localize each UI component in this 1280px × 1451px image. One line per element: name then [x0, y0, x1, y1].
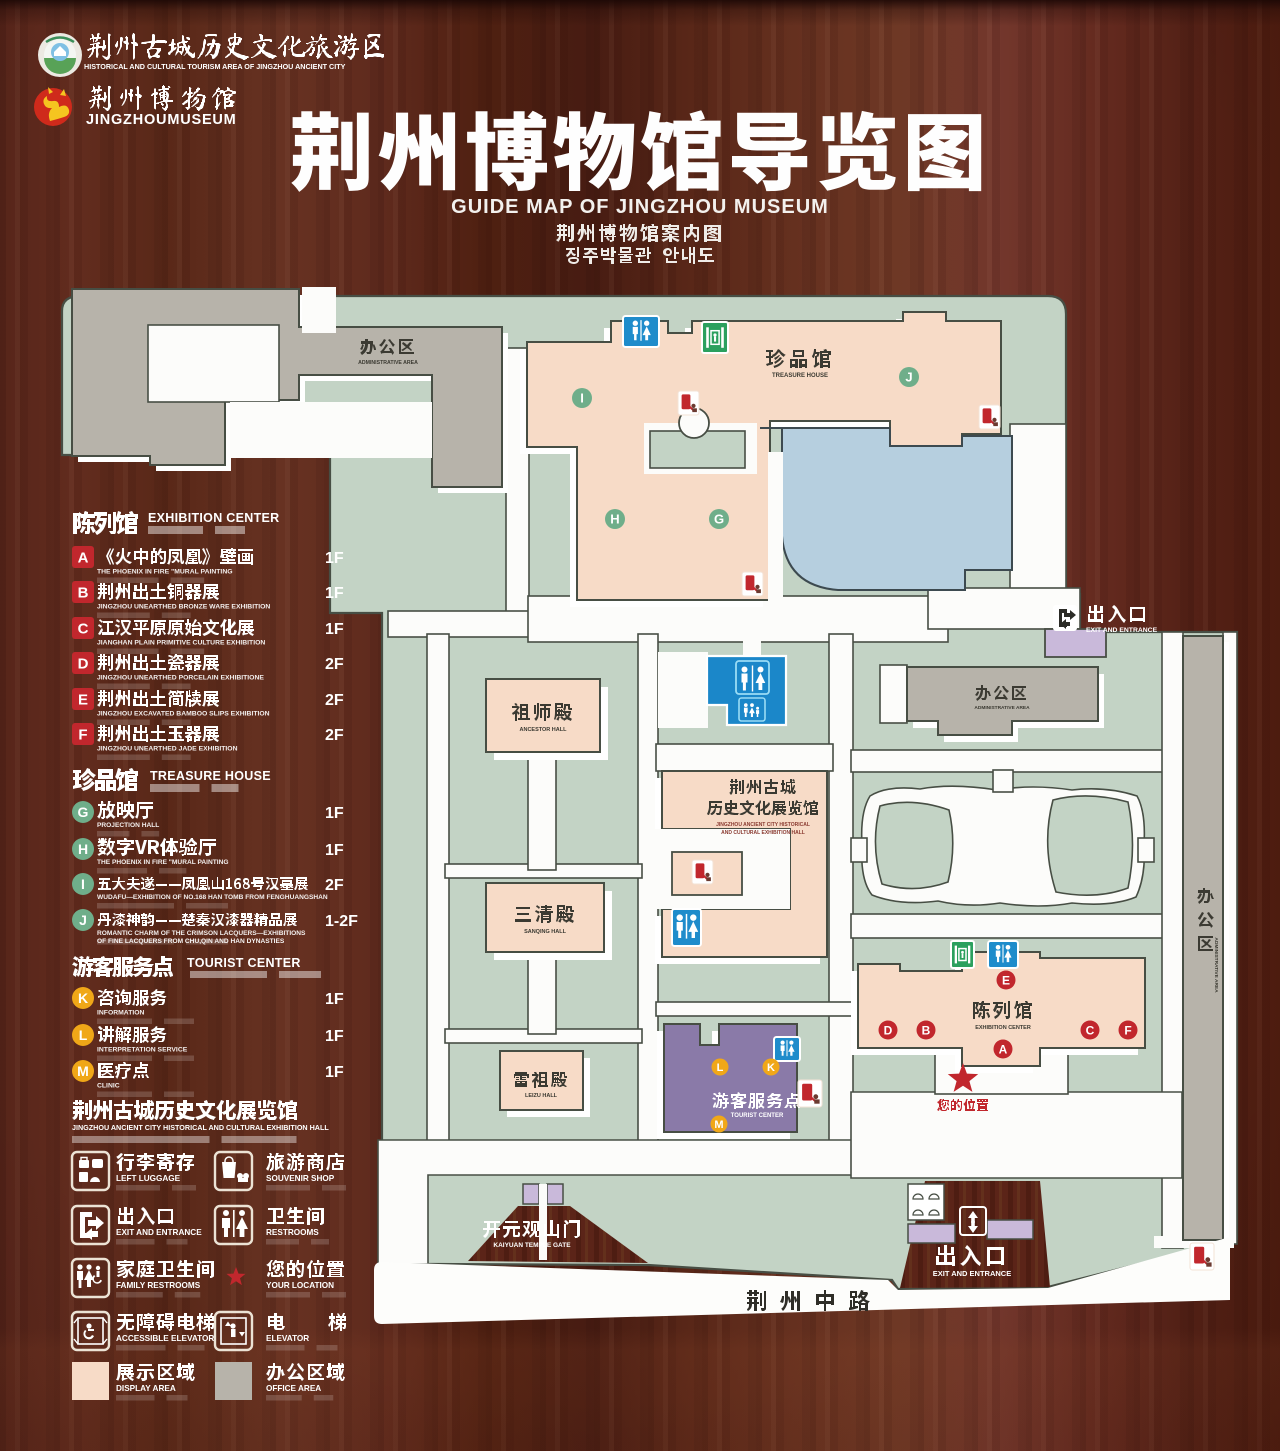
svg-text:ACCESSIBLE ELEVATOR: ACCESSIBLE ELEVATOR [116, 1334, 214, 1343]
svg-text:L: L [79, 1027, 88, 1043]
svg-text:2F: 2F [325, 656, 344, 673]
svg-text:AND CULTURAL EXHIBITION HALL: AND CULTURAL EXHIBITION HALL [721, 830, 805, 836]
svg-text:OFFICE AREA: OFFICE AREA [266, 1384, 321, 1393]
svg-text:1F: 1F [325, 805, 344, 822]
svg-text:ANCESTOR HALL: ANCESTOR HALL [520, 727, 568, 733]
svg-text:LEIZU HALL: LEIZU HALL [525, 1093, 558, 1099]
svg-text:EXIT AND ENTRANCE: EXIT AND ENTRANCE [116, 1228, 202, 1237]
svg-text:M: M [77, 1063, 89, 1079]
svg-text:I: I [580, 391, 584, 406]
svg-text:DISPLAY AREA: DISPLAY AREA [116, 1384, 176, 1393]
svg-text:F: F [78, 727, 87, 744]
svg-text:HISTORICAL AND CULTURAL TOURIS: HISTORICAL AND CULTURAL TOURISM AREA OF … [84, 62, 346, 71]
svg-text:JINGZHOU ANCIENT CITY HISTORIC: JINGZHOU ANCIENT CITY HISTORICAL AND CUL… [72, 1123, 329, 1132]
svg-text:SANQING HALL: SANQING HALL [524, 929, 567, 935]
svg-text:F: F [1124, 1023, 1131, 1037]
svg-text:JINGZHOUMUSEUM: JINGZHOUMUSEUM [86, 112, 237, 128]
svg-text:1F: 1F [325, 585, 344, 602]
svg-text:FAMILY RESTROOMS: FAMILY RESTROOMS [116, 1281, 201, 1290]
svg-text:M: M [714, 1119, 723, 1131]
svg-text:G: G [78, 804, 89, 820]
svg-text:1F: 1F [325, 991, 344, 1008]
svg-text:H: H [610, 512, 619, 527]
svg-text:D: D [884, 1023, 893, 1037]
svg-text:TOURIST CENTER: TOURIST CENTER [187, 956, 301, 970]
svg-text:JINGZHOU UNEARTHED BRONZE WARE: JINGZHOU UNEARTHED BRONZE WARE EXHIBITIO… [97, 604, 270, 611]
svg-text:K: K [767, 1062, 775, 1074]
svg-text:1F: 1F [325, 1028, 344, 1045]
svg-text:YOUR LOCATION: YOUR LOCATION [266, 1281, 334, 1290]
svg-text:2F: 2F [325, 877, 344, 894]
svg-text:D: D [78, 656, 89, 673]
svg-text:1F: 1F [325, 842, 344, 859]
svg-text:C: C [78, 621, 89, 638]
svg-text:THE PHOENIX IN FIRE "MURAL PAI: THE PHOENIX IN FIRE "MURAL PAINTING [97, 859, 228, 866]
svg-text:EXHIBITION CENTER: EXHIBITION CENTER [975, 1025, 1031, 1031]
svg-text:ADMINISTRATIVE AREA: ADMINISTRATIVE AREA [1213, 937, 1219, 993]
svg-text:EXHIBITION CENTER: EXHIBITION CENTER [148, 511, 280, 525]
svg-text:INTERPRETATION SERVICE: INTERPRETATION SERVICE [97, 1047, 188, 1054]
svg-text:EXIT AND ENTRANCE: EXIT AND ENTRANCE [1086, 627, 1158, 634]
svg-text:OF FINE LACQUERS FROM CHU,QIN: OF FINE LACQUERS FROM CHU,QIN AND HAN DY… [97, 938, 285, 945]
svg-text:ADMINISTRATIVE AREA: ADMINISTRATIVE AREA [358, 360, 418, 366]
svg-text:JINGZHOU ANCIENT CITY HISTORIC: JINGZHOU ANCIENT CITY HISTORICAL [716, 822, 810, 828]
svg-text:ELEVATOR: ELEVATOR [266, 1334, 309, 1343]
svg-text:A: A [999, 1042, 1008, 1056]
svg-text:THE PHOENIX IN FIRE "MURAL PAI: THE PHOENIX IN FIRE "MURAL PAINTING [97, 569, 233, 576]
svg-text:TOURIST CENTER: TOURIST CENTER [731, 1113, 784, 1119]
svg-text:1F: 1F [325, 550, 344, 567]
svg-text:ADMINISTRATIVE AREA: ADMINISTRATIVE AREA [974, 705, 1030, 711]
svg-text:K: K [78, 990, 88, 1006]
svg-text:2F: 2F [325, 692, 344, 709]
svg-text:EXIT AND ENTRANCE: EXIT AND ENTRANCE [933, 1269, 1011, 1278]
svg-text:JINGZHOU UNEARTHED PORCELAIN E: JINGZHOU UNEARTHED PORCELAIN EXHIBITIONE [97, 675, 264, 682]
svg-text:TREASURE HOUSE: TREASURE HOUSE [150, 769, 271, 783]
svg-text:GUIDE MAP OF JINGZHOU MUSEUM: GUIDE MAP OF JINGZHOU MUSEUM [451, 196, 829, 218]
svg-text:I: I [81, 876, 85, 892]
svg-text:C: C [1086, 1023, 1095, 1037]
svg-text:ROMANTIC CHARM OF THE CRIMSON: ROMANTIC CHARM OF THE CRIMSON LACQUERS—E… [97, 930, 306, 937]
svg-text:G: G [714, 512, 724, 527]
svg-text:L: L [717, 1062, 724, 1074]
svg-text:1F: 1F [325, 621, 344, 638]
svg-text:RESTROOMS: RESTROOMS [266, 1228, 319, 1237]
svg-text:TREASURE HOUSE: TREASURE HOUSE [772, 373, 828, 379]
svg-text:WUDAFU—EXHIBITION OF NO.168 HA: WUDAFU—EXHIBITION OF NO.168 HAN TOMB FRO… [97, 894, 328, 901]
svg-text:1-2F: 1-2F [325, 913, 358, 930]
svg-text:B: B [922, 1023, 931, 1037]
svg-text:J: J [905, 370, 912, 385]
svg-text:1F: 1F [325, 1064, 344, 1081]
svg-text:INFORMATION: INFORMATION [97, 1010, 145, 1017]
svg-text:JINGZHOU UNEARTHED JADE EXHIBI: JINGZHOU UNEARTHED JADE EXHIBITION [97, 746, 238, 753]
svg-text:A: A [78, 550, 89, 567]
svg-text:KAIYUAN TEMPLE GATE: KAIYUAN TEMPLE GATE [493, 1242, 571, 1249]
svg-text:SOUVENIR SHOP: SOUVENIR SHOP [266, 1174, 335, 1183]
svg-text:E: E [78, 692, 88, 709]
svg-text:PROJECTION HALL: PROJECTION HALL [97, 822, 159, 829]
svg-text:B: B [78, 585, 89, 602]
svg-text:E: E [1002, 973, 1010, 987]
svg-text:CLINIC: CLINIC [97, 1083, 120, 1090]
svg-text:LEFT LUGGAGE: LEFT LUGGAGE [116, 1174, 181, 1183]
svg-text:2F: 2F [325, 727, 344, 744]
svg-text:H: H [78, 841, 88, 857]
svg-text:JINGZHOU EXCAVATED BAMBOO SLIP: JINGZHOU EXCAVATED BAMBOO SLIPS EXHIBITI… [97, 711, 270, 718]
svg-text:JIANGHAN PLAIN PRIMITIVE CULTU: JIANGHAN PLAIN PRIMITIVE CULTURE EXHIBIT… [97, 640, 265, 647]
svg-text:J: J [79, 912, 87, 928]
